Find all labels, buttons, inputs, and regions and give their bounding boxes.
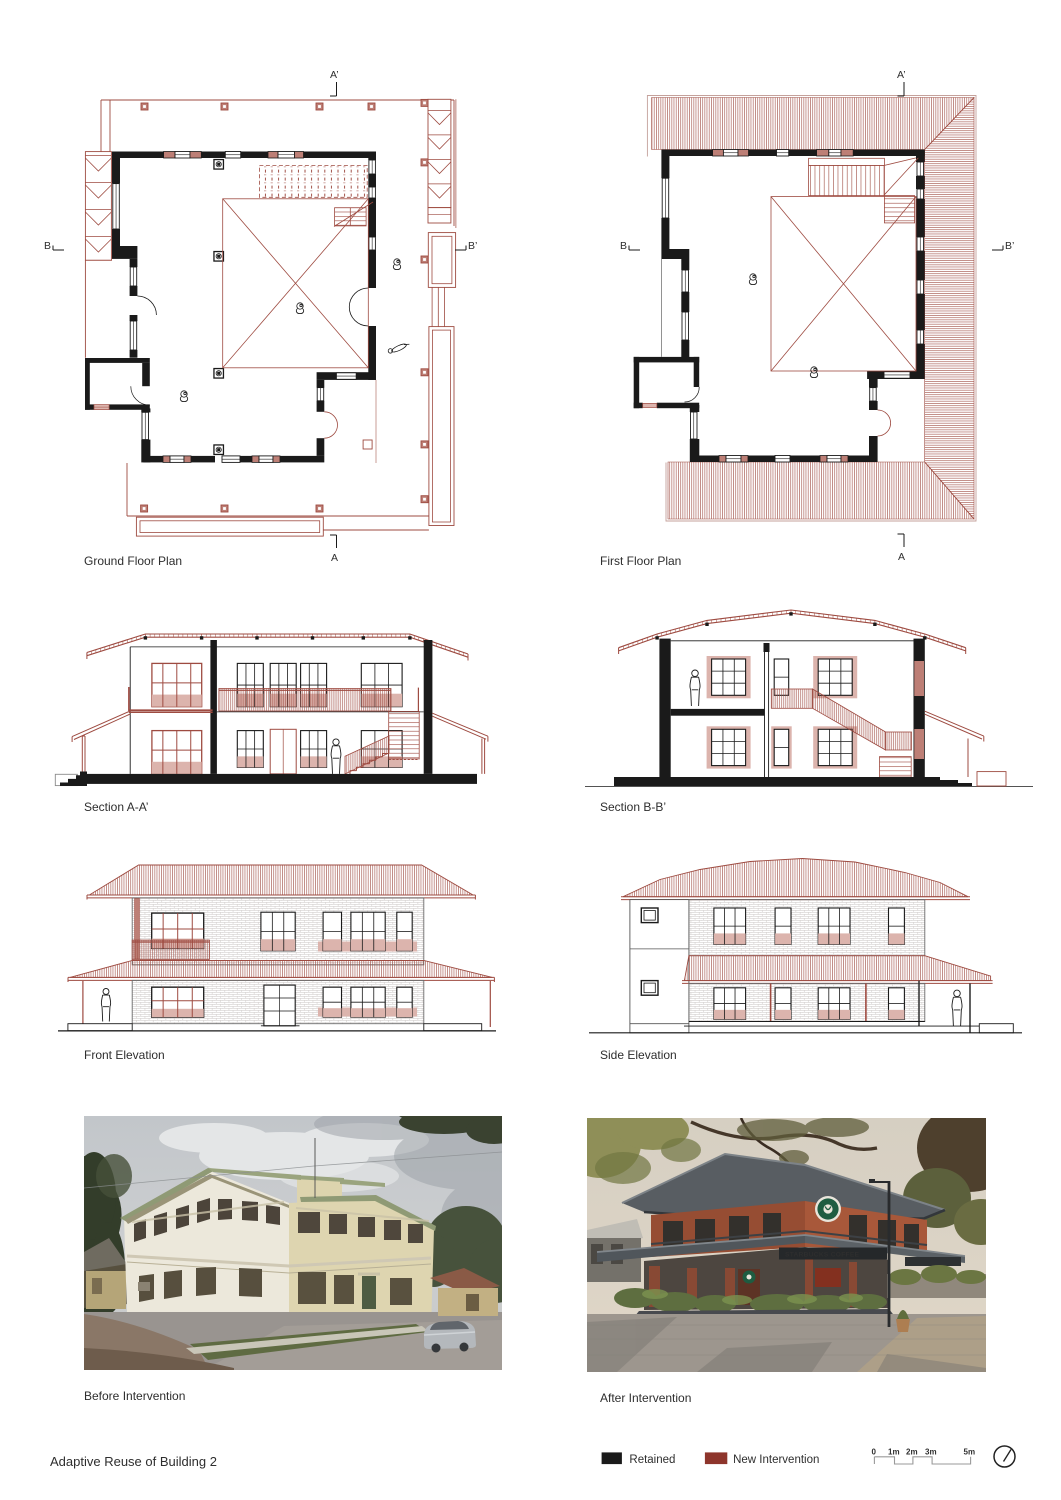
svg-text:Section A-A’: Section A-A’ <box>84 800 148 814</box>
svg-text:A: A <box>898 551 905 563</box>
svg-text:2m: 2m <box>906 1448 918 1457</box>
svg-text:Ground Floor Plan: Ground Floor Plan <box>84 554 182 568</box>
svg-text:A’: A’ <box>897 69 906 81</box>
svg-text:B’: B’ <box>468 240 477 252</box>
svg-text:New Intervention: New Intervention <box>733 1454 819 1466</box>
svg-text:Retained: Retained <box>629 1454 675 1466</box>
svg-text:3m: 3m <box>925 1448 937 1457</box>
svg-text:First Floor Plan: First Floor Plan <box>600 554 681 568</box>
svg-text:A’: A’ <box>330 69 339 81</box>
svg-text:B’: B’ <box>1005 240 1014 252</box>
svg-text:Before Intervention: Before Intervention <box>84 1389 185 1403</box>
svg-text:A: A <box>331 552 338 564</box>
svg-text:Section B-B’: Section B-B’ <box>600 800 666 814</box>
svg-text:1m: 1m <box>888 1448 900 1457</box>
svg-text:Front Elevation: Front Elevation <box>84 1048 165 1062</box>
svg-text:0: 0 <box>872 1448 877 1457</box>
svg-text:B: B <box>620 240 627 252</box>
svg-text:STARBUCKS COFFEE: STARBUCKS COFFEE <box>785 1252 860 1259</box>
svg-text:B: B <box>44 240 51 252</box>
svg-text:After Intervention: After Intervention <box>600 1391 691 1405</box>
svg-text:Side Elevation: Side Elevation <box>600 1048 677 1062</box>
svg-text:Adaptive Reuse of Building 2: Adaptive Reuse of Building 2 <box>50 1454 217 1469</box>
svg-text:5m: 5m <box>964 1448 976 1457</box>
